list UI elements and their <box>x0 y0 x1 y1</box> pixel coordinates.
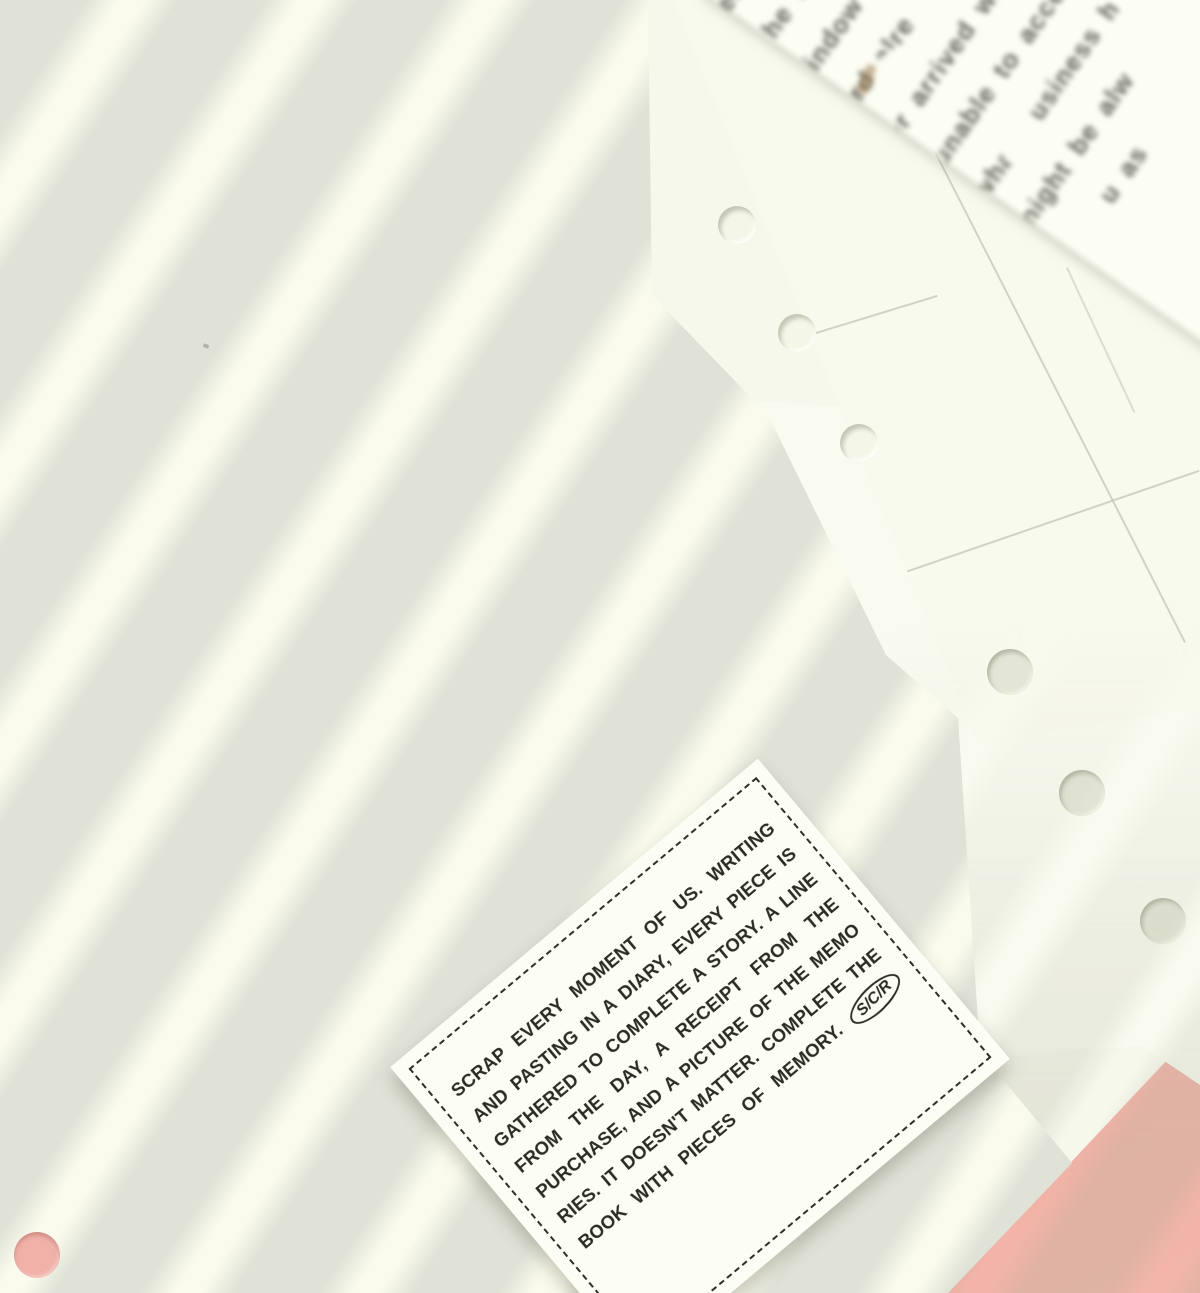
product-photo-scrapbook-papers: ued the fl window erd alre er arrived wh… <box>0 0 1200 1293</box>
punched-hole-small <box>718 206 756 244</box>
punched-hole-pink <box>14 1232 60 1278</box>
punched-hole-large <box>1140 898 1186 944</box>
punched-hole-small <box>840 424 878 462</box>
punched-hole-large <box>987 649 1033 695</box>
punched-hole-large <box>1059 770 1105 816</box>
punched-hole-small <box>778 314 816 352</box>
dust-speck <box>202 343 209 349</box>
